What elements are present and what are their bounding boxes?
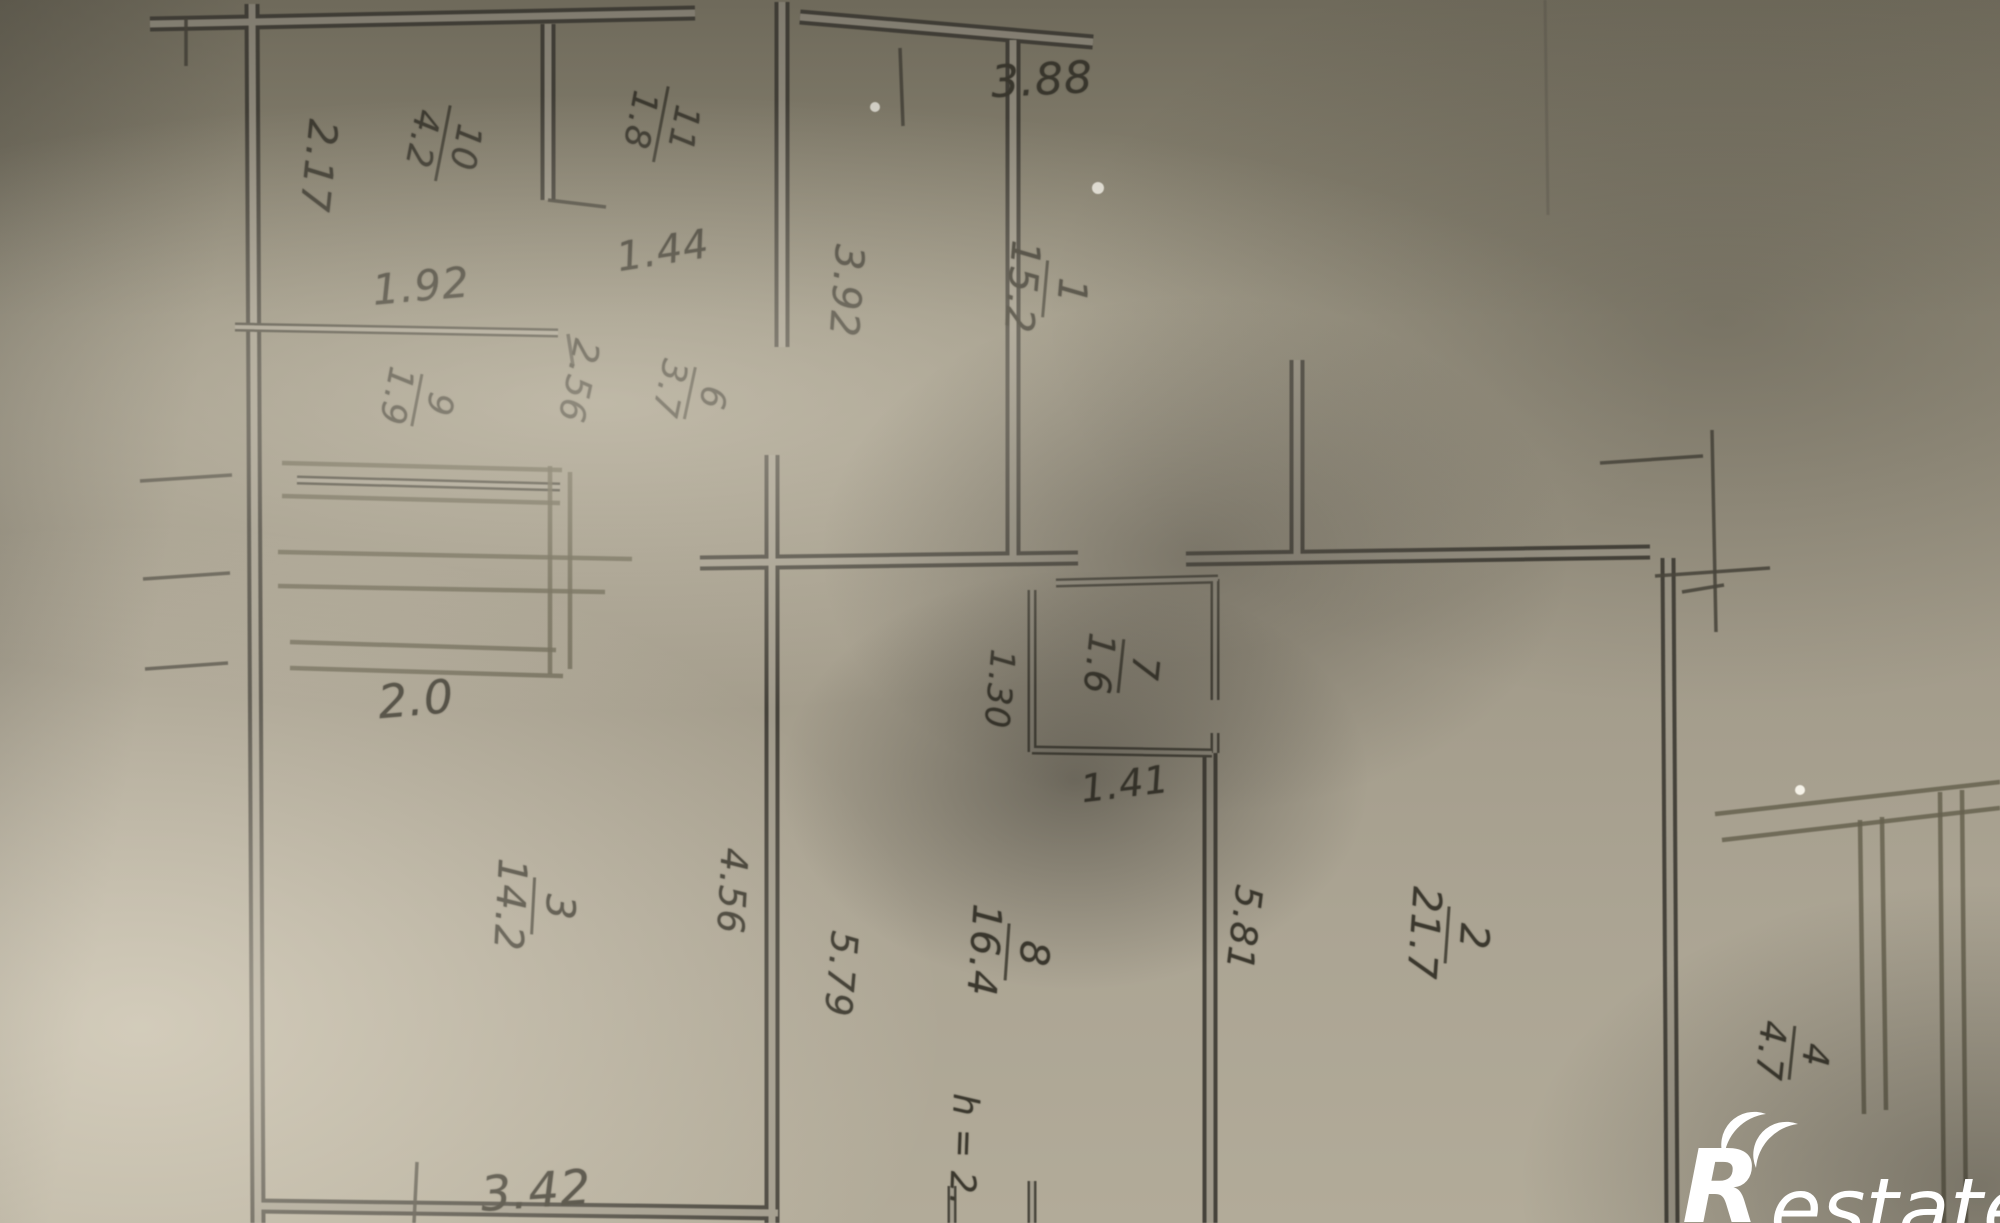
dimension-3-42: 3.42 bbox=[479, 1159, 594, 1223]
room-label-11: 11 1.8 bbox=[614, 79, 708, 170]
dimension-1-30: 1.30 bbox=[976, 648, 1023, 731]
shadow-edge bbox=[1545, 0, 1548, 215]
room-label-7: 7 1.6 bbox=[1076, 631, 1167, 701]
room-number: 7 bbox=[1116, 639, 1166, 698]
walls-thick bbox=[150, 2, 1672, 1223]
room-area: 21.7 bbox=[1399, 885, 1449, 981]
floor-plan-photo: 1 15.2 2 21.7 3 14.2 4 4.7 6 3.7 7 1.6 8… bbox=[0, 0, 2000, 1223]
room-label-10: 10 4.2 bbox=[396, 98, 490, 189]
dimension-3-88: 3.88 bbox=[990, 52, 1094, 108]
floor-plan-drawing: 1 15.2 2 21.7 3 14.2 4 4.7 6 3.7 7 1.6 8… bbox=[0, 0, 2000, 1223]
room-label-8: 8 16.4 bbox=[959, 902, 1056, 1001]
door-marker bbox=[900, 48, 903, 126]
room-number: 8 bbox=[1004, 924, 1055, 984]
room-area: 14.2 bbox=[486, 857, 534, 952]
dimension-3-92: 3.92 bbox=[820, 243, 872, 339]
dimension-2-17: 2.17 bbox=[290, 117, 345, 214]
room-label-2: 2 21.7 bbox=[1399, 885, 1496, 984]
dimension-2-0: 2.0 bbox=[376, 669, 457, 729]
dimension-4-56: 4.56 bbox=[708, 847, 755, 936]
walls-thin bbox=[235, 327, 1218, 1223]
room-number: 2 bbox=[1444, 907, 1495, 967]
dimension-1-92: 1.92 bbox=[370, 257, 471, 314]
balcony-rails bbox=[278, 463, 632, 676]
room-number: 4 bbox=[1787, 1026, 1836, 1084]
watermark-text: estate bbox=[1770, 1160, 2000, 1223]
room-area: 15.2 bbox=[997, 239, 1049, 336]
room-area: 16.4 bbox=[959, 902, 1009, 998]
room-area: 1.6 bbox=[1076, 631, 1123, 697]
room-number: 1 bbox=[1042, 261, 1094, 321]
room-label-4: 4 4.7 bbox=[1748, 1019, 1837, 1088]
room-label-1: 1 15.2 bbox=[997, 239, 1096, 340]
ceiling-height-note: h = 2. bbox=[941, 1093, 985, 1207]
room-area: 4.7 bbox=[1748, 1019, 1794, 1083]
dimension-ticks bbox=[140, 18, 1770, 1223]
dimension-5-79: 5.79 bbox=[816, 929, 866, 1019]
room-number: 3 bbox=[531, 878, 581, 937]
room-label-3: 3 14.2 bbox=[486, 857, 582, 955]
watermark-restate: R estate bbox=[1672, 1098, 2000, 1223]
watermark-letter-r: R bbox=[1682, 1128, 1761, 1223]
